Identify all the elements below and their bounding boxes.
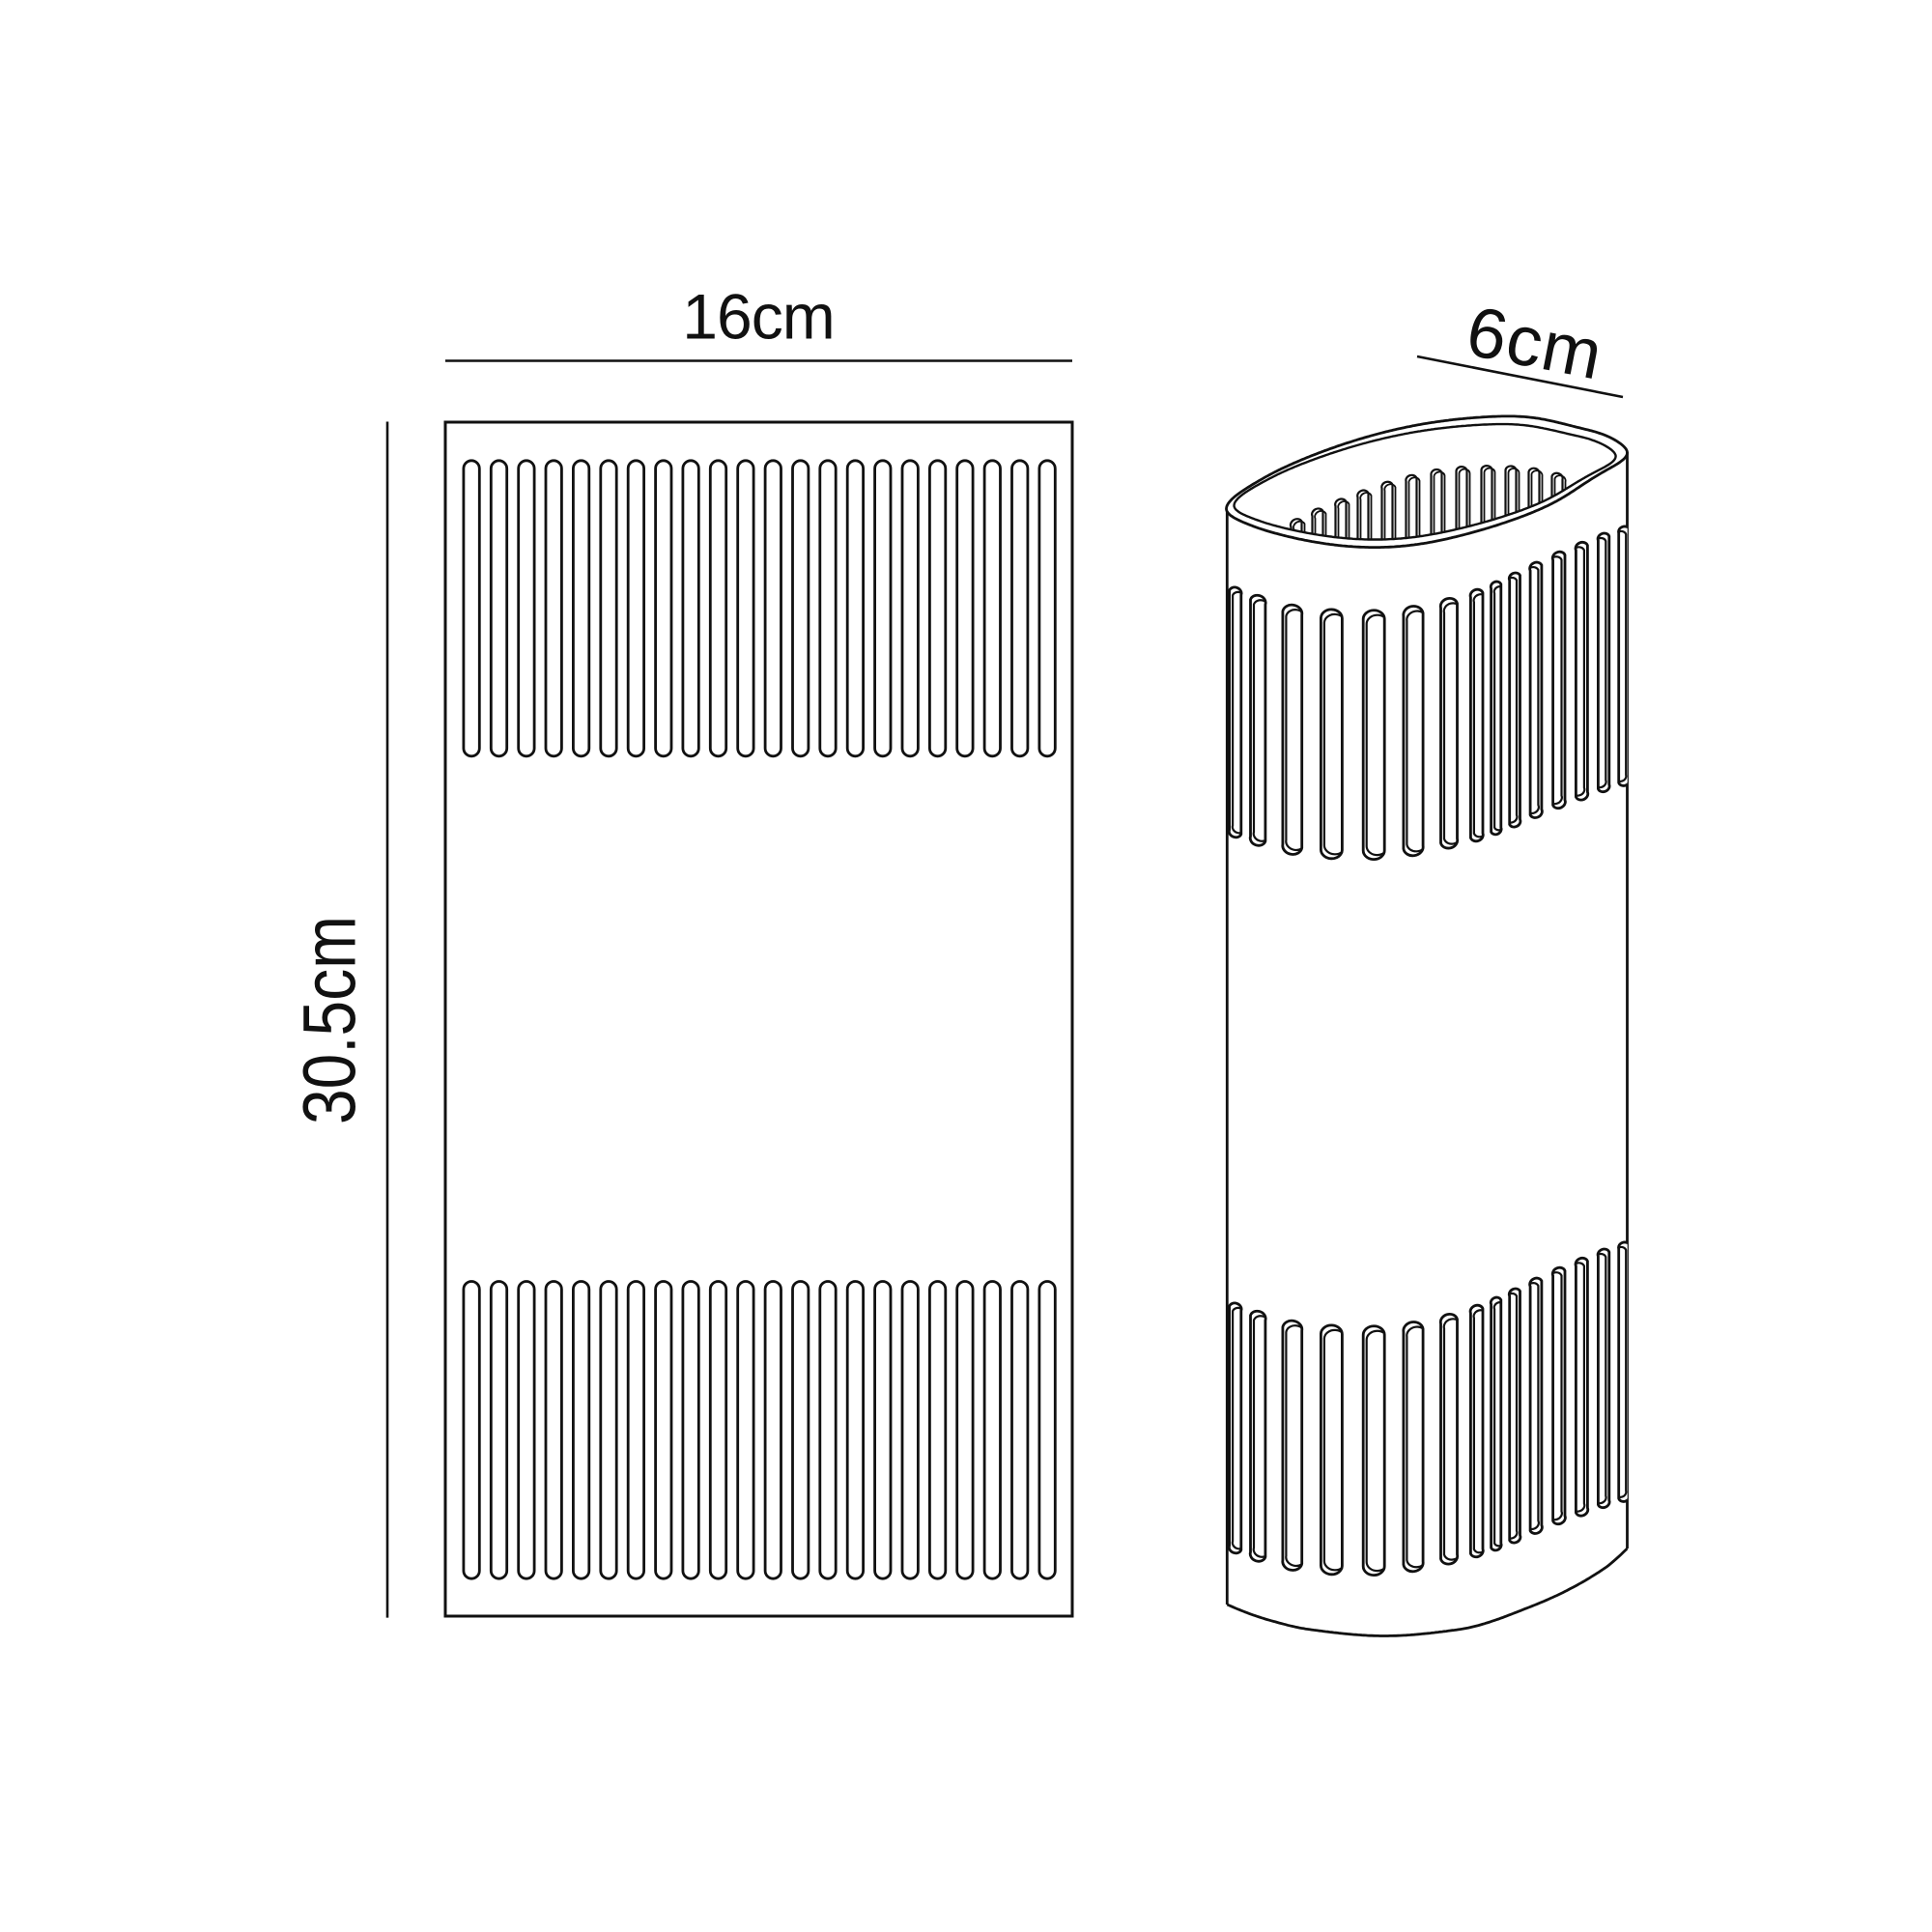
- svg-text:30.5cm: 30.5cm: [289, 916, 372, 1124]
- svg-text:16cm: 16cm: [682, 281, 834, 353]
